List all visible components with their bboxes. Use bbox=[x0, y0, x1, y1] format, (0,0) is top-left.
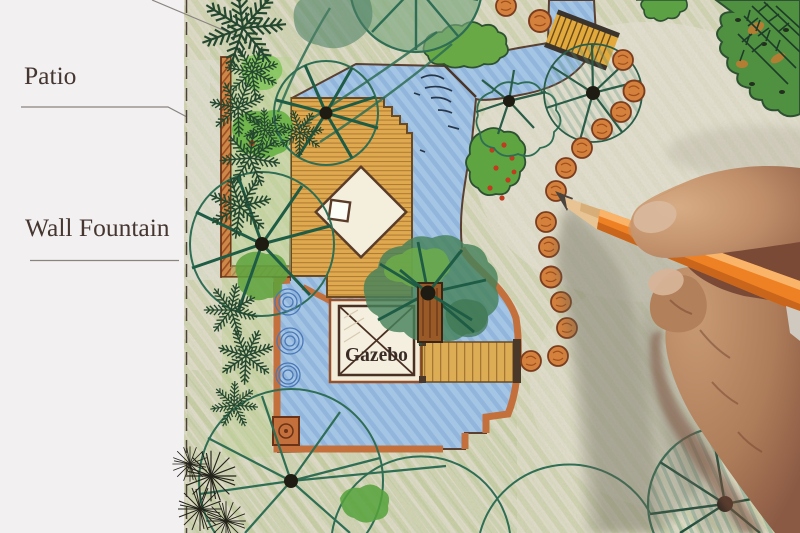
svg-text:Gazebo: Gazebo bbox=[345, 345, 408, 366]
svg-text:Patio: Patio bbox=[24, 61, 76, 90]
svg-text:Wall Fountain: Wall Fountain bbox=[25, 213, 170, 242]
